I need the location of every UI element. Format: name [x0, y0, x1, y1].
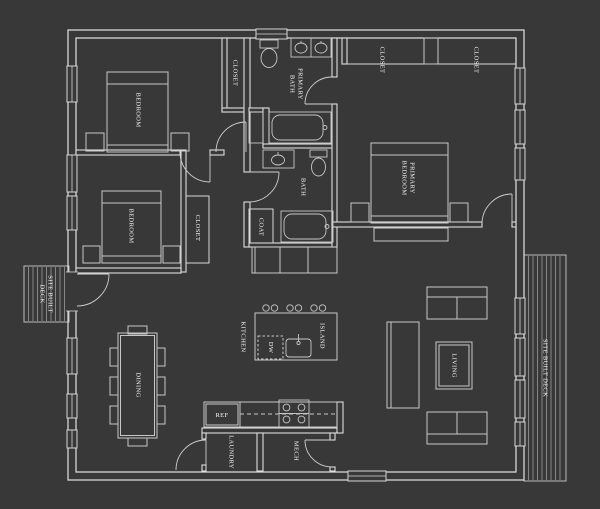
label-living: LIVING — [451, 353, 458, 377]
window — [515, 110, 525, 144]
label-primary-bedroom-line2: BEDROOM — [401, 161, 408, 196]
window — [256, 29, 287, 39]
label-closet-bedroom-middle: CLOSET — [194, 215, 201, 242]
window — [515, 422, 525, 446]
window — [67, 430, 77, 448]
label-laundry: LAUNDRY — [228, 435, 235, 469]
window — [348, 471, 386, 481]
label-primary-bath-line2: BATH — [289, 75, 296, 93]
label-refrigerator: REF — [216, 412, 229, 419]
label-coat: COAT — [258, 218, 265, 236]
window — [67, 338, 77, 374]
label-primary-closet-right: CLOSET — [473, 47, 480, 74]
label-primary-closet-left: CLOSET — [379, 47, 386, 74]
label-primary-bath-line1: PRIMARY — [297, 68, 304, 100]
label-dining: DINING — [135, 372, 142, 397]
window — [67, 155, 77, 192]
window — [515, 338, 525, 376]
label-closet-bedroom-top: CLOSET — [232, 60, 239, 87]
label-primary-bedroom-line1: PRIMARY — [409, 162, 416, 194]
label-deck-right: SITE BUILT DECK — [542, 339, 549, 397]
label-kitchen: KITCHEN — [240, 322, 247, 353]
label-deck-left-line1: SITE BUILT — [47, 275, 54, 312]
label-mech: MECH — [293, 441, 300, 461]
window — [515, 68, 525, 104]
window — [515, 380, 525, 418]
floor-plan-svg: BEDROOM BEDROOM CLOSET CLOSET PRIMARY BA… — [0, 0, 600, 509]
label-bath: BATH — [300, 178, 307, 196]
window — [515, 298, 525, 334]
label-bedroom-top: BEDROOM — [135, 93, 142, 128]
label-dishwasher: DW — [267, 342, 274, 354]
label-bedroom-middle: BEDROOM — [128, 209, 135, 244]
window — [67, 394, 77, 418]
window — [515, 148, 525, 180]
label-island: ISLAND — [319, 323, 326, 349]
window — [67, 196, 77, 230]
label-deck-left-line2: DECK — [39, 284, 46, 303]
window — [67, 66, 77, 102]
